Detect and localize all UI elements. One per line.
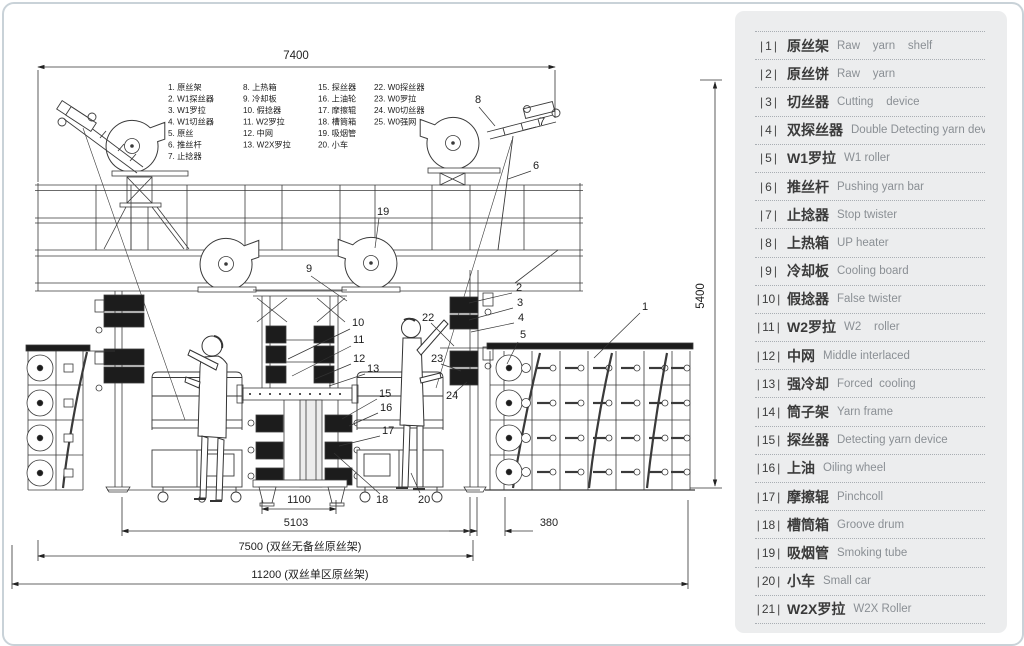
legend-cn: 上油: [787, 458, 815, 478]
svg-text:1. 原丝架: 1. 原丝架: [168, 82, 202, 92]
legend-item-15: 15探丝器Detecting yarn device: [755, 427, 985, 455]
svg-text:8. 上热箱: 8. 上热箱: [243, 82, 277, 92]
legend-cn: 双探丝器: [787, 120, 843, 140]
legend-cn: W1罗拉: [787, 148, 836, 168]
legend-num: 18: [755, 518, 782, 532]
legend-cn: 止捻器: [787, 205, 829, 225]
legend-en: Raw yarn: [837, 68, 895, 80]
legend-cn: 中网: [787, 346, 815, 366]
svg-text:17. 摩擦辊: 17. 摩擦辊: [318, 105, 356, 115]
svg-text:1: 1: [642, 301, 648, 313]
svg-text:7: 7: [539, 116, 545, 128]
svg-text:20: 20: [418, 494, 430, 506]
svg-text:3: 3: [517, 297, 523, 309]
legend-en: Groove drum: [837, 519, 904, 531]
svg-text:20. 小车: 20. 小车: [318, 140, 348, 150]
legend-en: False twister: [837, 293, 902, 305]
legend-num: 4: [755, 123, 782, 137]
svg-text:16: 16: [380, 402, 392, 414]
legend-num: 10: [755, 292, 782, 306]
svg-text:4: 4: [518, 312, 524, 324]
legend-item-16: 16上油Oiling wheel: [755, 455, 985, 483]
legend-en: Double Detecting yarn device: [851, 124, 985, 136]
legend-item-9: 9冷却板Cooling board: [755, 258, 985, 286]
svg-text:4. W1切丝器: 4. W1切丝器: [168, 117, 214, 127]
legend-en: Pushing yarn bar: [837, 181, 924, 193]
legend-item-6: 6推丝杆Pushing yarn bar: [755, 173, 985, 201]
legend-en: Pinchcoll: [837, 491, 883, 503]
legend-en: Small car: [823, 575, 871, 587]
svg-text:2: 2: [516, 282, 522, 294]
legend-cn: 强冷却: [787, 374, 829, 394]
svg-text:7. 止捻器: 7. 止捻器: [168, 151, 202, 161]
svg-text:22. W0探丝器: 22. W0探丝器: [374, 82, 425, 92]
svg-text:11. W2罗拉: 11. W2罗拉: [243, 117, 285, 127]
legend-item-2: 2原丝饼Raw yarn: [755, 60, 985, 88]
legend-item-3: 3切丝器Cutting device: [755, 88, 985, 116]
left-yarn-rack: [26, 345, 90, 490]
legend-num: 1: [755, 39, 782, 53]
legend-item-17: 17摩擦辊Pinchcoll: [755, 483, 985, 511]
legend-en: Raw yarn shelf: [837, 40, 932, 52]
legend-panel: 1原丝架Raw yarn shelf 2原丝饼Raw yarn 3切丝器Cutt…: [735, 11, 1007, 633]
svg-text:6. 推丝杆: 6. 推丝杆: [168, 140, 202, 150]
legend-item-19: 19吸烟管Smoking tube: [755, 539, 985, 567]
legend-num: 15: [755, 433, 782, 447]
svg-text:24: 24: [446, 390, 458, 402]
legend-cn: 上热箱: [787, 233, 829, 253]
legend-en: Stop twister: [837, 209, 897, 221]
dim-total-single-zone: 11200 (双丝单区原丝架): [251, 568, 368, 581]
legend-num: 3: [755, 95, 782, 109]
legend-item-18: 18槽筒箱Groove drum: [755, 511, 985, 539]
legend-num: 16: [755, 461, 782, 475]
legend-cn: 切丝器: [787, 92, 829, 112]
legend-en: Cooling board: [837, 265, 909, 277]
legend-cn: 推丝杆: [787, 177, 829, 197]
legend-cn: 筒子架: [787, 402, 829, 422]
legend-item-10: 10假捻器False twister: [755, 286, 985, 314]
svg-text:5: 5: [520, 329, 526, 341]
svg-text:9. 冷却板: 9. 冷却板: [243, 94, 277, 104]
legend-num: 8: [755, 236, 782, 250]
legend-cn: 探丝器: [787, 430, 829, 450]
dim-rack-gap: 380: [540, 517, 558, 529]
legend-cn: W2罗拉: [787, 317, 836, 337]
dim-machine-base: 5103: [284, 517, 308, 529]
legend-num: 9: [755, 264, 782, 278]
left-leg-w1-units: [83, 291, 144, 492]
legend-en: Smoking tube: [837, 547, 907, 559]
legend-cn: 原丝饼: [787, 64, 829, 84]
legend-en: W1 roller: [844, 152, 890, 164]
svg-text:8: 8: [475, 94, 481, 106]
svg-text:15. 探丝器: 15. 探丝器: [318, 82, 356, 92]
legend-en: Oiling wheel: [823, 462, 886, 474]
dim-total-no-spare: 7500 (双丝无备丝原丝架): [239, 539, 362, 553]
legend-en: Forced cooling: [837, 378, 916, 390]
central-tower: [237, 290, 360, 506]
svg-text:23. W0罗拉: 23. W0罗拉: [374, 94, 416, 104]
svg-text:6: 6: [533, 160, 539, 172]
legend-num: 5: [755, 151, 782, 165]
legend-item-13: 13强冷却Forced cooling: [755, 370, 985, 398]
legend-cn: 冷却板: [787, 261, 829, 281]
legend-en: Yarn frame: [837, 406, 893, 418]
legend-num: 17: [755, 490, 782, 504]
legend-cn: 原丝架: [787, 36, 829, 56]
legend-cn: 小车: [787, 571, 815, 591]
legend-item-20: 20小车Small car: [755, 568, 985, 596]
legend-en: W2 roller: [844, 321, 900, 333]
machine-technical-drawing: 7400 5400 1100 5103 380 7500 (双丝无备丝原丝架) …: [0, 0, 735, 646]
legend-num: 11: [755, 320, 782, 334]
svg-text:16. 上油轮: 16. 上油轮: [318, 94, 356, 104]
svg-text:2. W1探丝器: 2. W1探丝器: [168, 94, 214, 104]
dim-center-base: 1100: [287, 494, 311, 506]
right-yarn-rack: [485, 343, 695, 490]
legend-item-14: 14筒子架Yarn frame: [755, 398, 985, 426]
fan-blowers: [104, 117, 500, 292]
svg-text:23: 23: [431, 353, 443, 365]
right-leg-w0-units: [440, 270, 504, 492]
legend-list: 1原丝架Raw yarn shelf 2原丝饼Raw yarn 3切丝器Cutt…: [755, 31, 985, 624]
svg-text:13: 13: [367, 363, 379, 375]
legend-en: Detecting yarn device: [837, 434, 948, 446]
legend-num: 6: [755, 180, 782, 194]
svg-text:12: 12: [353, 353, 365, 365]
svg-text:25. W0强网: 25. W0强网: [374, 118, 416, 127]
legend-item-21: 21W2X罗拉W2X Roller: [755, 596, 985, 624]
legend-num: 21: [755, 602, 782, 616]
svg-text:19: 19: [377, 206, 389, 218]
legend-cn: 吸烟管: [787, 543, 829, 563]
legend-cn: 假捻器: [787, 289, 829, 309]
parts-list: 1. 原丝架 2. W1探丝器 3. W1罗拉 4. W1切丝器 5. 原丝 6…: [168, 82, 425, 161]
svg-text:10: 10: [352, 317, 364, 329]
legend-num: 7: [755, 208, 782, 222]
legend-item-7: 7止捻器Stop twister: [755, 201, 985, 229]
legend-num: 20: [755, 574, 782, 588]
legend-cn: 摩擦辊: [787, 487, 829, 507]
legend-cn: W2X罗拉: [787, 599, 845, 619]
legend-en: W2X Roller: [853, 603, 911, 615]
svg-text:19. 吸烟管: 19. 吸烟管: [318, 128, 356, 138]
svg-text:12. 中网: 12. 中网: [243, 128, 273, 138]
legend-en: Middle interlaced: [823, 350, 910, 362]
svg-text:18. 槽筒箱: 18. 槽筒箱: [318, 117, 356, 127]
legend-item-5: 5W1罗拉W1 roller: [755, 145, 985, 173]
legend-num: 13: [755, 377, 782, 391]
legend-cn: 槽筒箱: [787, 515, 829, 535]
svg-text:15: 15: [379, 388, 391, 400]
legend-num: 12: [755, 349, 782, 363]
svg-text:18: 18: [376, 494, 388, 506]
legend-num: 2: [755, 67, 782, 81]
svg-text:9: 9: [306, 263, 312, 275]
legend-num: 19: [755, 546, 782, 560]
legend-item-4: 4双探丝器Double Detecting yarn device: [755, 117, 985, 145]
legend-item-8: 8上热箱UP heater: [755, 229, 985, 257]
svg-text:11: 11: [353, 334, 364, 346]
svg-text:13. W2X罗拉: 13. W2X罗拉: [243, 140, 291, 150]
svg-text:22: 22: [422, 312, 434, 324]
svg-text:10. 假捻器: 10. 假捻器: [243, 105, 281, 115]
legend-item-11: 11W2罗拉W2 roller: [755, 314, 985, 342]
legend-en: UP heater: [837, 237, 889, 249]
legend-en: Cutting device: [837, 96, 919, 108]
legend-item-1: 1原丝架Raw yarn shelf: [755, 32, 985, 60]
svg-text:17: 17: [382, 425, 394, 437]
legend-num: 14: [755, 405, 782, 419]
svg-text:3. W1罗拉: 3. W1罗拉: [168, 105, 206, 115]
dim-height: 5400: [695, 283, 707, 309]
legend-item-12: 12中网Middle interlaced: [755, 342, 985, 370]
svg-text:5. 原丝: 5. 原丝: [168, 128, 193, 138]
dim-top-width: 7400: [283, 50, 309, 62]
svg-text:24. W0切丝器: 24. W0切丝器: [374, 105, 425, 115]
